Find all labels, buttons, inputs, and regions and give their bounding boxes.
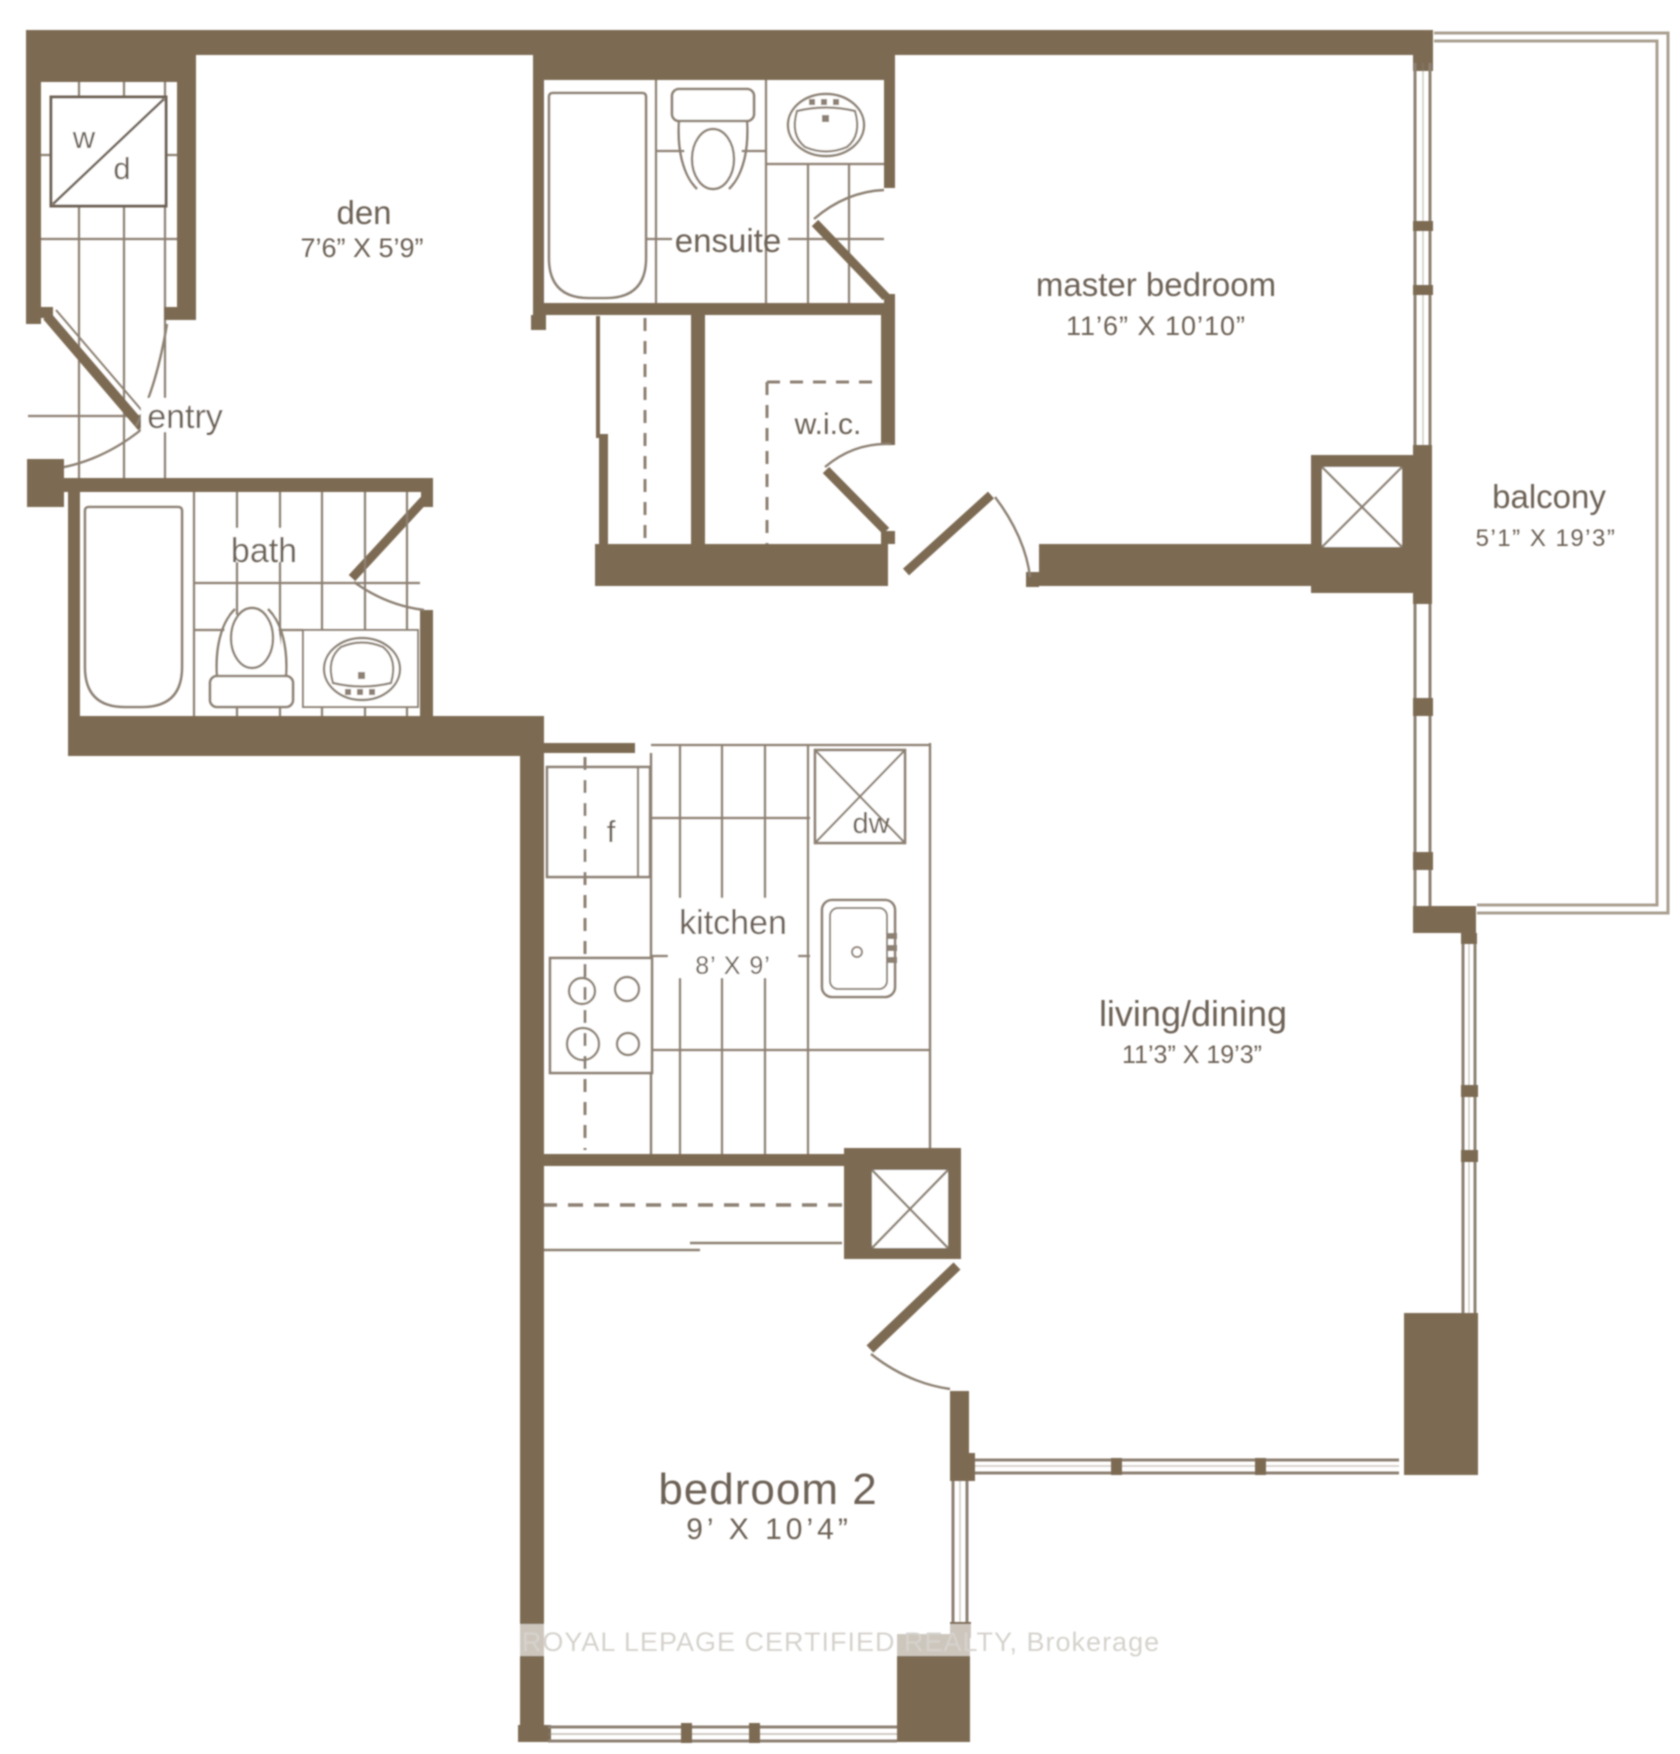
svg-text:kitchen: kitchen (679, 904, 787, 942)
svg-text:9’ X 10’4”: 9’ X 10’4” (686, 1513, 852, 1546)
svg-text:entry: entry (147, 398, 223, 436)
svg-text:ROYAL LEPAGE CERTIFIED REALTY,: ROYAL LEPAGE CERTIFIED REALTY, Brokerage (522, 1627, 1160, 1657)
svg-text:den: den (336, 194, 391, 231)
svg-text:w.i.c.: w.i.c. (794, 408, 862, 441)
svg-text:bath: bath (231, 532, 297, 570)
svg-text:f: f (607, 814, 616, 849)
svg-text:dw: dw (852, 808, 890, 840)
svg-text:living/dining: living/dining (1099, 993, 1287, 1034)
svg-text:5’1” X 19’3”: 5’1” X 19’3” (1476, 525, 1617, 552)
svg-text:balcony: balcony (1492, 478, 1606, 515)
svg-text:11’3” X 19’3”: 11’3” X 19’3” (1122, 1041, 1262, 1069)
svg-text:master bedroom: master bedroom (1036, 266, 1276, 303)
svg-text:7’6” X 5’9”: 7’6” X 5’9” (300, 233, 423, 263)
svg-text:ensuite: ensuite (675, 222, 781, 259)
svg-text:w: w (72, 120, 96, 155)
svg-text:d: d (113, 151, 130, 186)
svg-text:bedroom 2: bedroom 2 (658, 1465, 877, 1514)
svg-text:8’ X 9’: 8’ X 9’ (695, 952, 771, 980)
svg-text:11’6” X 10’10”: 11’6” X 10’10” (1066, 311, 1246, 341)
